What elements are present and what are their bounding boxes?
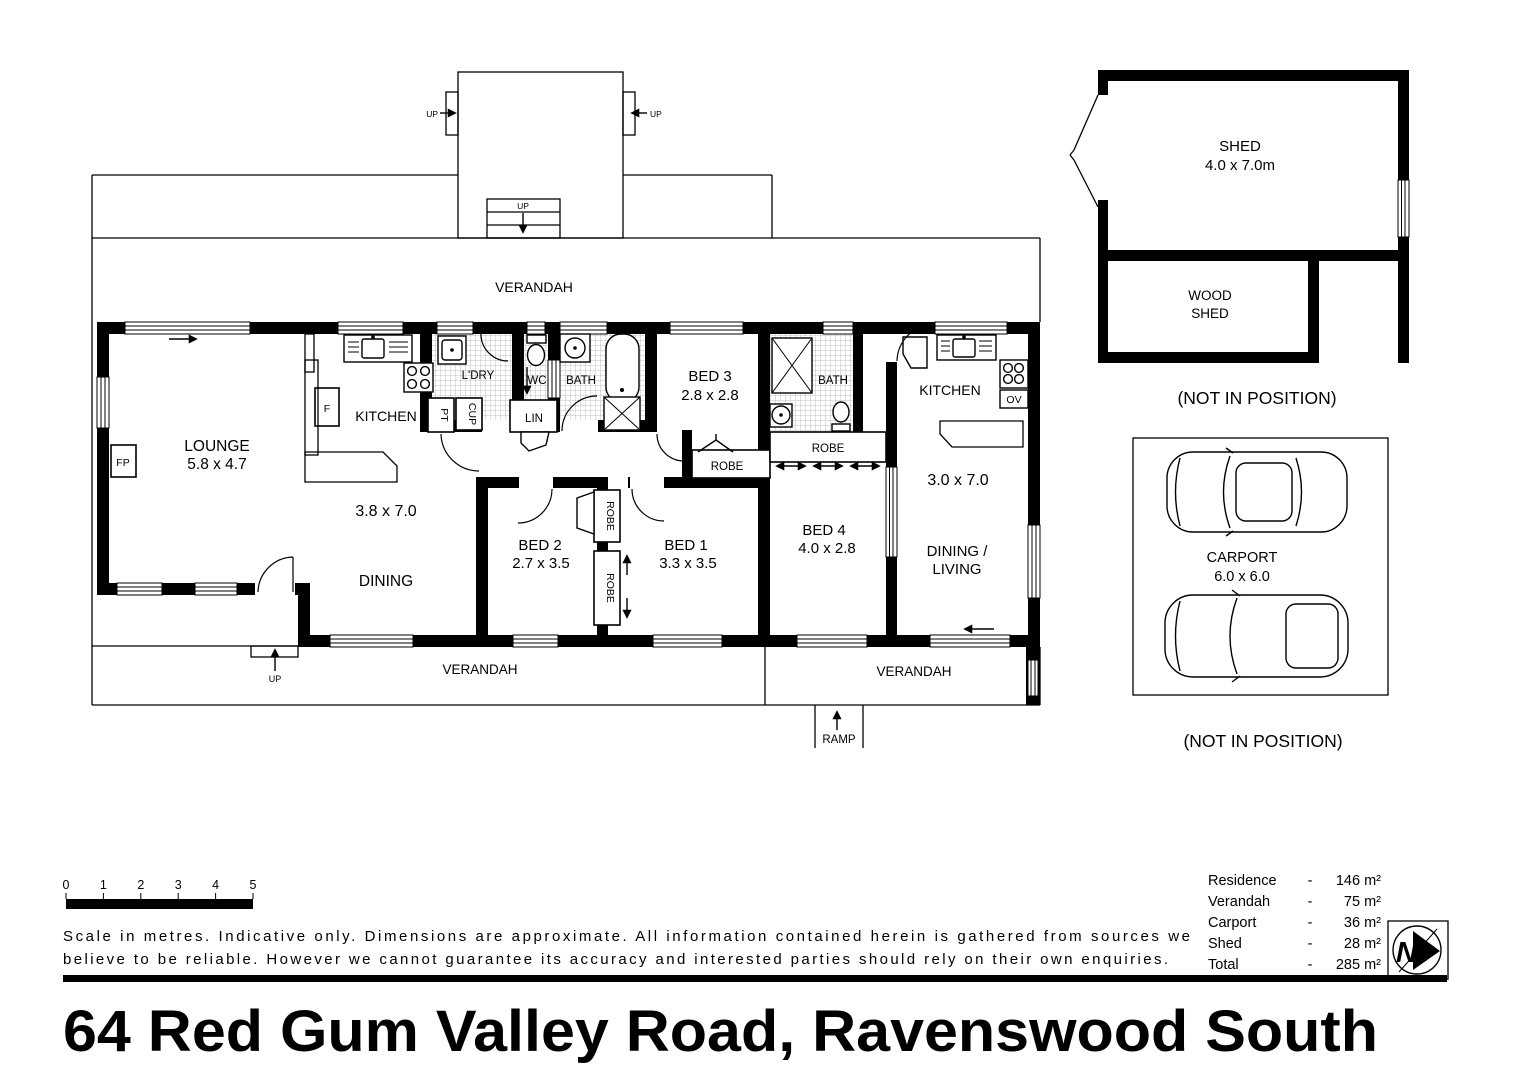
wood-shed-name-2: SHED bbox=[1191, 306, 1229, 321]
bed3-dims: 2.8 x 2.8 bbox=[681, 387, 739, 404]
area-row-sep: - bbox=[1308, 915, 1313, 931]
bed1-dims: 3.3 x 3.5 bbox=[659, 555, 717, 572]
area-row-sep: - bbox=[1308, 936, 1313, 952]
area-row-sep: - bbox=[1308, 957, 1313, 973]
title-divider bbox=[63, 975, 1447, 982]
linen-label: LIN bbox=[525, 413, 543, 425]
carport-outline bbox=[1133, 438, 1388, 695]
bath2-label: BATH bbox=[818, 375, 848, 387]
scale-tick-0: 0 bbox=[63, 878, 70, 892]
kitchen1-label: KITCHEN bbox=[355, 408, 416, 424]
wc-toilet-icon bbox=[527, 335, 546, 366]
bed1-robe-label: ROBE bbox=[604, 573, 616, 603]
bath1-shower-icon bbox=[604, 397, 640, 430]
outbuilding-labels: SHED 4.0 x 7.0m WOOD SHED (NOT IN POSITI… bbox=[1177, 138, 1342, 751]
bed1-name: BED 1 bbox=[664, 537, 707, 554]
floorplan-page: 0 1 2 3 4 5 VERANDAH VERANDAH VERANDAH R… bbox=[0, 0, 1513, 1080]
stairs-up-label: UP bbox=[517, 201, 529, 211]
page-title: 64 Red Gum Valley Road, Ravenswood South bbox=[63, 999, 1378, 1064]
scale-tick-2: 2 bbox=[137, 878, 144, 892]
bed3-name: BED 3 bbox=[688, 368, 731, 385]
area-row-value: 36 m² bbox=[1344, 915, 1381, 931]
area-row-value: 146 m² bbox=[1336, 873, 1381, 889]
disclaimer-line-1: Scale in metres. Indicative only. Dimens… bbox=[63, 928, 1190, 945]
bath1-label: BATH bbox=[566, 375, 596, 387]
scale-tick-4: 4 bbox=[212, 878, 219, 892]
shed-name: SHED bbox=[1219, 138, 1261, 155]
laundry-trough-icon bbox=[438, 336, 466, 364]
up-right-label: UP bbox=[650, 109, 662, 119]
area-row-label: Shed bbox=[1208, 936, 1242, 952]
bath1-basin-icon bbox=[560, 334, 590, 362]
kitchen2-bench bbox=[940, 421, 1023, 447]
area-row-label: Total bbox=[1208, 957, 1239, 973]
area-row-value: 28 m² bbox=[1344, 936, 1381, 952]
disclaimer-line-2: believe to be reliable. However we canno… bbox=[63, 951, 1168, 968]
shed-outline bbox=[1070, 70, 1409, 363]
bed2-robe-door-flap-icon bbox=[577, 492, 594, 534]
carport-dims: 6.0 x 6.0 bbox=[1214, 569, 1270, 585]
dining-living-name-1: DINING / bbox=[927, 543, 989, 560]
scale-bar: 0 1 2 3 4 5 bbox=[63, 878, 257, 909]
cupboard-label: CUP bbox=[466, 403, 478, 425]
bed2-dims: 2.7 x 3.5 bbox=[512, 555, 570, 572]
fridge-label: F bbox=[324, 403, 330, 415]
area-row-label: Carport bbox=[1208, 915, 1256, 931]
bed4-name: BED 4 bbox=[802, 522, 845, 539]
bed4-dims: 4.0 x 2.8 bbox=[798, 540, 856, 557]
bath2-toilet-icon bbox=[832, 402, 850, 431]
floorplan-drawing: 0 1 2 3 4 5 VERANDAH VERANDAH VERANDAH R… bbox=[0, 0, 1513, 1080]
kitchen1-sink-icon bbox=[344, 335, 412, 362]
oven-label: OV bbox=[1006, 394, 1021, 406]
pantry-label: PT bbox=[438, 408, 450, 422]
kitchen2-label: KITCHEN bbox=[919, 382, 980, 398]
verandah-top-label: VERANDAH bbox=[495, 279, 573, 295]
compass: N bbox=[1388, 921, 1448, 979]
entry-stairs bbox=[440, 72, 647, 238]
dining-living-dims: 3.0 x 7.0 bbox=[927, 472, 988, 489]
area-row-value: 75 m² bbox=[1344, 894, 1381, 910]
dining-living-name-2: LIVING bbox=[932, 561, 981, 578]
not-in-position-shed: (NOT IN POSITION) bbox=[1177, 388, 1336, 408]
scale-tick-3: 3 bbox=[175, 878, 182, 892]
carport-name: CARPORT bbox=[1207, 550, 1278, 566]
kitchen2-sink-icon bbox=[937, 335, 996, 360]
area-row-label: Residence bbox=[1208, 873, 1277, 889]
verandah-bottom-right-label: VERANDAH bbox=[876, 664, 951, 679]
linen-door-flap-icon bbox=[521, 432, 549, 451]
bed2-name: BED 2 bbox=[518, 537, 561, 554]
up-left-label: UP bbox=[426, 109, 438, 119]
porch-step bbox=[251, 646, 298, 671]
lounge-dims: 5.8 x 4.7 bbox=[187, 456, 246, 473]
scale-tick-5: 5 bbox=[250, 878, 257, 892]
car-bottom-icon bbox=[1165, 590, 1348, 682]
area-row-sep: - bbox=[1308, 894, 1313, 910]
wc-label: WC bbox=[527, 375, 546, 387]
bed4-robe-label: ROBE bbox=[812, 443, 845, 455]
bath2-shower-icon bbox=[772, 338, 812, 393]
ramp-label: RAMP bbox=[822, 734, 856, 746]
not-in-position-carport: (NOT IN POSITION) bbox=[1183, 731, 1342, 751]
fireplace-label: FP bbox=[116, 457, 129, 469]
compass-north-letter: N bbox=[1396, 937, 1418, 969]
bed2-robe-label: ROBE bbox=[604, 501, 616, 531]
porch-up-label: UP bbox=[269, 674, 282, 684]
kitchen1-stove-icon bbox=[404, 363, 433, 392]
area-row-value: 285 m² bbox=[1336, 957, 1381, 973]
verandah-bottom-left-label: VERANDAH bbox=[442, 662, 517, 677]
area-row-sep: - bbox=[1308, 873, 1313, 889]
kitchen2-stove-icon bbox=[1000, 360, 1028, 388]
area-summary: Residence - 146 m² Verandah - 75 m² Carp… bbox=[1208, 873, 1381, 973]
disclaimer: Scale in metres. Indicative only. Dimens… bbox=[63, 928, 1190, 968]
wood-shed-name-1: WOOD bbox=[1188, 288, 1232, 303]
dining-label: DINING bbox=[359, 573, 413, 590]
lounge-name: LOUNGE bbox=[184, 438, 249, 455]
laundry-label: L'DRY bbox=[462, 370, 495, 382]
area-row-label: Verandah bbox=[1208, 894, 1270, 910]
bed3-robe-label: ROBE bbox=[711, 461, 744, 473]
car-top-icon bbox=[1167, 448, 1347, 536]
bath2-basin-icon bbox=[770, 404, 792, 427]
kitchen2-pantry-icon bbox=[903, 337, 927, 368]
scale-tick-1: 1 bbox=[100, 878, 107, 892]
shed-dims: 4.0 x 7.0m bbox=[1205, 157, 1275, 174]
kitchen-dining-dims: 3.8 x 7.0 bbox=[355, 503, 416, 520]
